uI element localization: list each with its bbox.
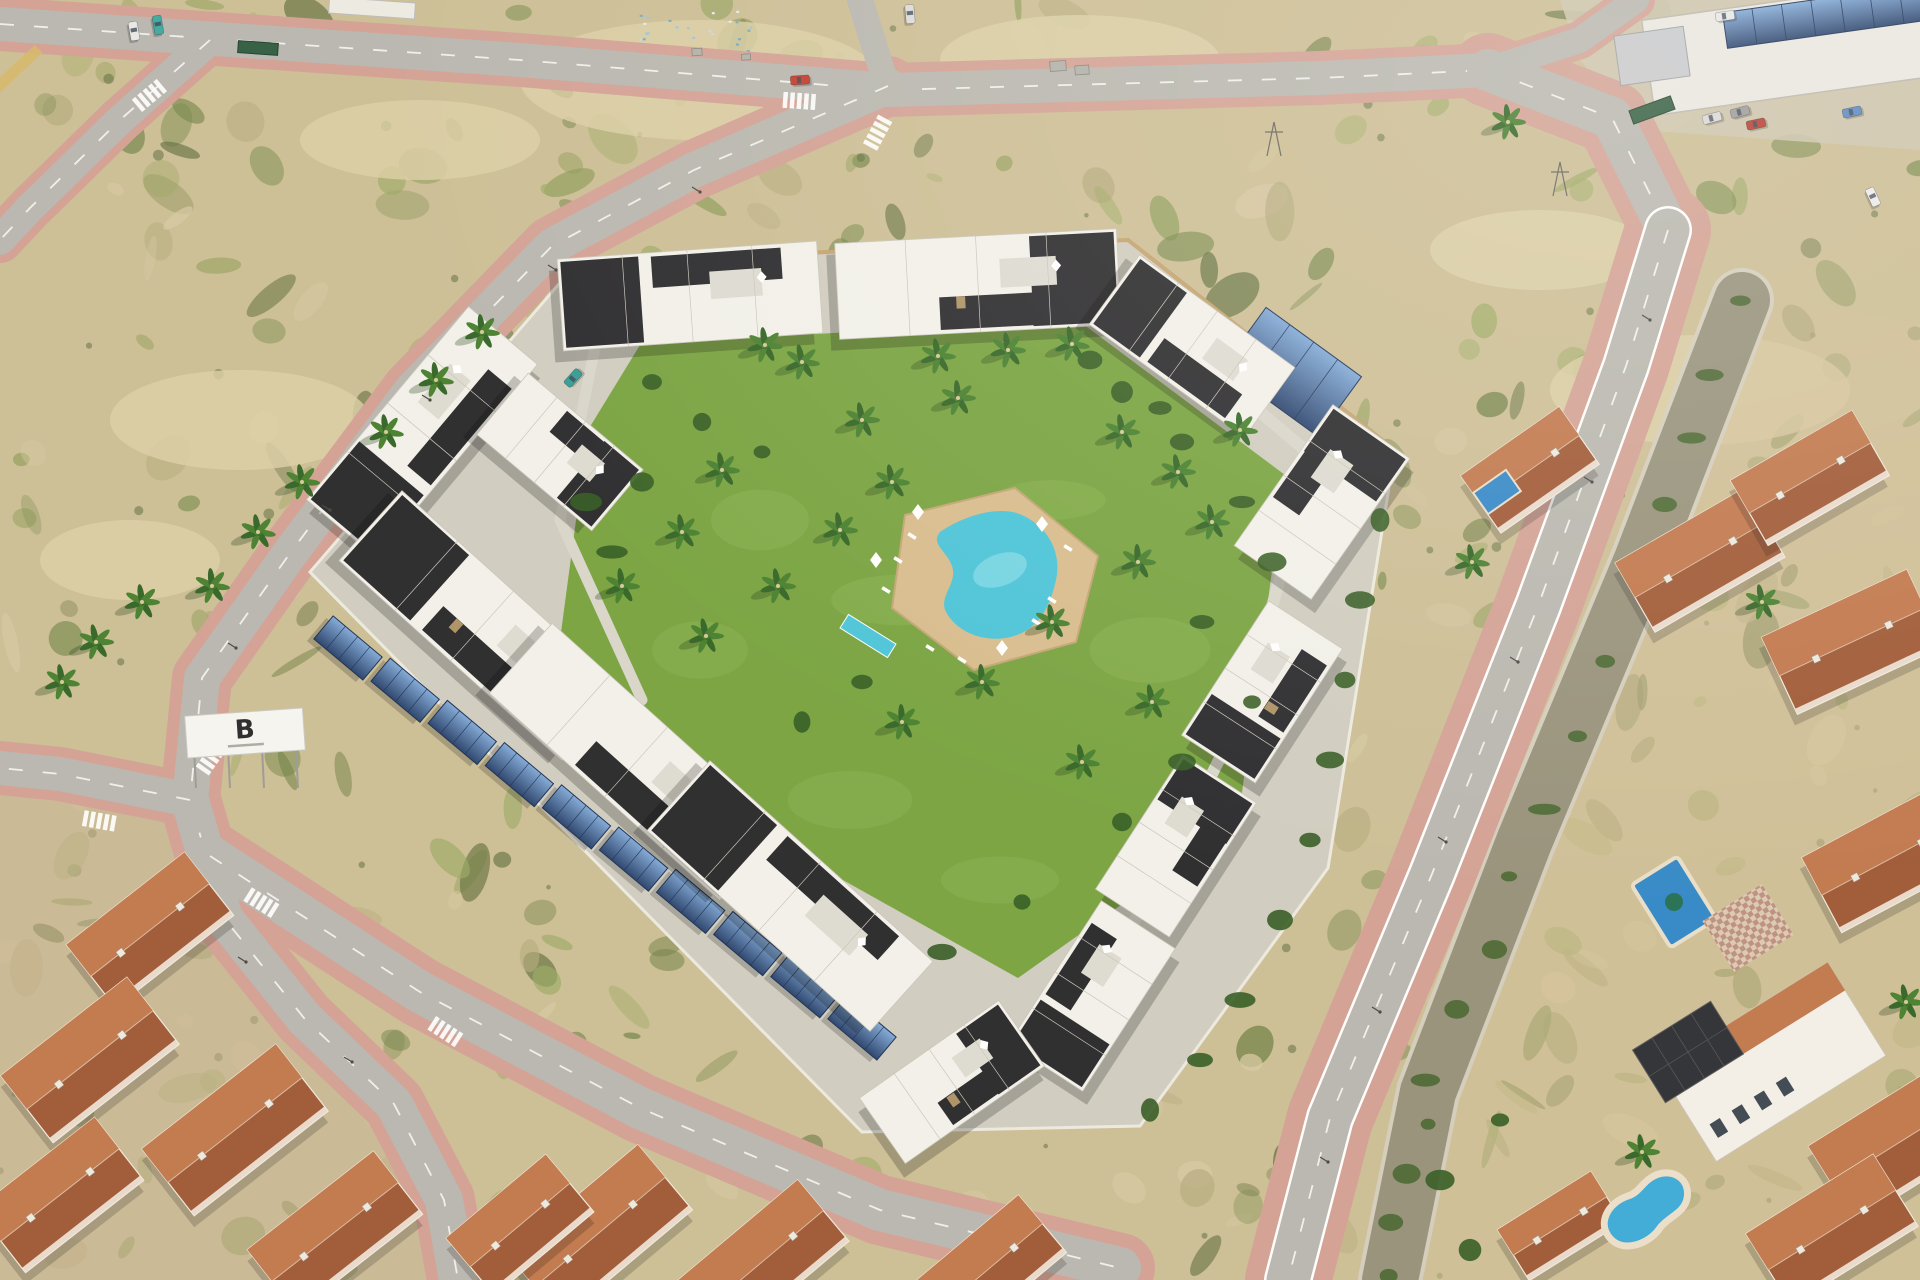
scene-svg: B — [0, 0, 1920, 1280]
aerial-photo: B — [0, 0, 1920, 1280]
